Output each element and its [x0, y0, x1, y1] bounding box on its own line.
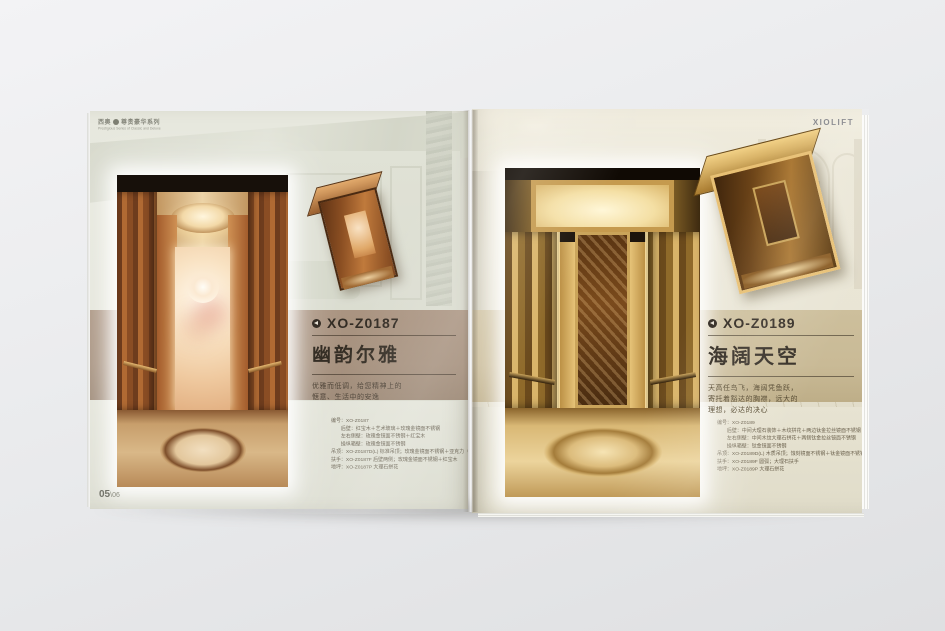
- elevator-wall-left: [117, 192, 157, 410]
- photo-top-strip: [505, 168, 700, 180]
- spec-line: 左右侧壁：中间木纹大理石拼花＋两侧钛金拉丝镜面不锈钢: [717, 435, 862, 443]
- spec-line: 扶手：XO-Z0189F 圆弧；大理石扶手: [717, 458, 862, 466]
- elevator-photo-xo-z0187: [117, 175, 288, 487]
- page-stack-edge-bottom: [478, 513, 864, 517]
- page-number-sub: \06: [110, 492, 120, 499]
- elevator-inner-wall-left: [559, 242, 575, 408]
- elevator-inner-wall-right: [228, 215, 248, 410]
- brochure-mockup: 西奥 尊贵豪华系列 Prestigious Series of Classic …: [0, 0, 945, 631]
- description-line: 惬意、生活中的安逸: [312, 392, 456, 403]
- right-page: XIOLIFT X: [472, 109, 862, 513]
- rear-wood-panel: [575, 232, 630, 408]
- light-strip-right: [645, 232, 648, 408]
- spec-list-right: 编号：XO-Z0189 后壁：中间大理石装饰＋木纹拼花＋两边钛金拉丝镜面不锈钢 …: [717, 419, 862, 473]
- product-name: 幽韵尔雅: [312, 339, 456, 370]
- right-product-title-block: XO-Z0189 海阔天空 天高任鸟飞，海阔凭鱼跃， 寄托着豁达的胸襟，远大的 …: [708, 315, 854, 416]
- floor-medallion: [543, 426, 663, 478]
- spec-line: 吊顶：XO-Z0189D(L) 木质吊顶；蚀刻镜面不锈钢＋钛金镜面不锈钢＋亚克力: [717, 450, 862, 458]
- brand-logo: XIOLIFT: [813, 118, 854, 127]
- spread-gutter-fold: [463, 110, 478, 512]
- series-tagline: Prestigious Series of Classic and Deluxe: [98, 127, 161, 130]
- elevator-wall-right: [248, 192, 288, 410]
- left-page: 西奥 尊贵豪华系列 Prestigious Series of Classic …: [90, 111, 468, 509]
- arrow-left-circle-icon: [708, 319, 717, 328]
- description-line: 优雅而低调，给您精神上的: [312, 381, 456, 392]
- spec-line: 操纵箱壁：玫瑰金镜面不锈钢: [331, 440, 468, 448]
- series-logo-text: 西奥: [98, 117, 111, 126]
- series-logo: 西奥 尊贵豪华系列 Prestigious Series of Classic …: [98, 117, 206, 133]
- product-model: XO-Z0189: [723, 315, 796, 331]
- divider: [312, 374, 456, 375]
- elevator-inner-wall-right: [630, 242, 646, 408]
- page-number: 05\06: [99, 484, 120, 502]
- spec-line: 编号：XO-Z0187: [331, 417, 468, 425]
- page-stack-edge-right: [862, 115, 869, 509]
- lotus-artwork: [187, 271, 219, 303]
- ceiling-lamp: [171, 203, 235, 233]
- page-number-main: 05: [99, 489, 110, 500]
- description-line: 天高任鸟飞，海阔凭鱼跃，: [708, 383, 854, 394]
- photo-top-strip: [117, 175, 288, 192]
- divider: [708, 335, 854, 336]
- description-line: 理想，必达的决心: [708, 405, 854, 416]
- spec-line: 吊顶：XO-Z0187D(L) 标准吊顶；玫瑰金镜面不锈钢＋亚克力（透光）: [331, 448, 468, 456]
- spec-line: 后壁：红宝木＋艺术玻璃＋玫瑰金镜面不锈钢: [331, 425, 468, 433]
- product-description: 天高任鸟飞，海阔凭鱼跃， 寄托着豁达的胸襟，远大的 理想，必达的决心: [708, 383, 854, 416]
- arrow-left-circle-icon: [312, 319, 321, 328]
- divider: [708, 376, 854, 377]
- series-name-text: 尊贵豪华系列: [121, 117, 160, 126]
- floor-medallion: [160, 427, 246, 473]
- spec-line: 地坪：XO-Z0189P 大理石拼花: [717, 466, 862, 474]
- brand-mark-icon: [113, 119, 119, 125]
- elevator-inner-wall-left: [157, 215, 177, 410]
- elevator-ceiling-panel: [531, 180, 674, 232]
- spec-line: 扶手：XO-Z0187F 后壁两侧；玫瑰金镜面不锈钢＋红宝木: [331, 456, 468, 464]
- spec-list-left: 编号：XO-Z0187 后壁：红宝木＋艺术玻璃＋玫瑰金镜面不锈钢 左右侧壁：玫瑰…: [331, 417, 468, 471]
- spec-line: 后壁：中间大理石装饰＋木纹拼花＋两边钛金拉丝镜面不锈钢: [717, 427, 862, 435]
- spec-line: 地坪：XO-Z0187P 大理石拼花: [331, 464, 468, 472]
- spec-line: 左右侧壁：玫瑰金镜面不锈钢＋红宝木: [331, 433, 468, 441]
- spec-line: 编号：XO-Z0189: [717, 419, 862, 427]
- elevator-photo-xo-z0189: [505, 168, 700, 497]
- description-line: 寄托着豁达的胸襟，远大的: [708, 394, 854, 405]
- product-name: 海阔天空: [708, 339, 854, 372]
- product-model: XO-Z0187: [327, 315, 400, 331]
- faded-chandelier: [512, 115, 558, 137]
- divider: [312, 335, 456, 336]
- light-strip-left: [557, 232, 560, 408]
- product-description: 优雅而低调，给您精神上的 惬意、生活中的安逸: [312, 381, 456, 403]
- spec-line: 操纵箱壁：钛金镜面不锈钢: [717, 442, 862, 450]
- ceiling-side-left: [505, 180, 531, 232]
- faded-marble-column: [426, 111, 452, 306]
- left-product-title-block: XO-Z0187 幽韵尔雅 优雅而低调，给您精神上的 惬意、生活中的安逸: [312, 315, 456, 403]
